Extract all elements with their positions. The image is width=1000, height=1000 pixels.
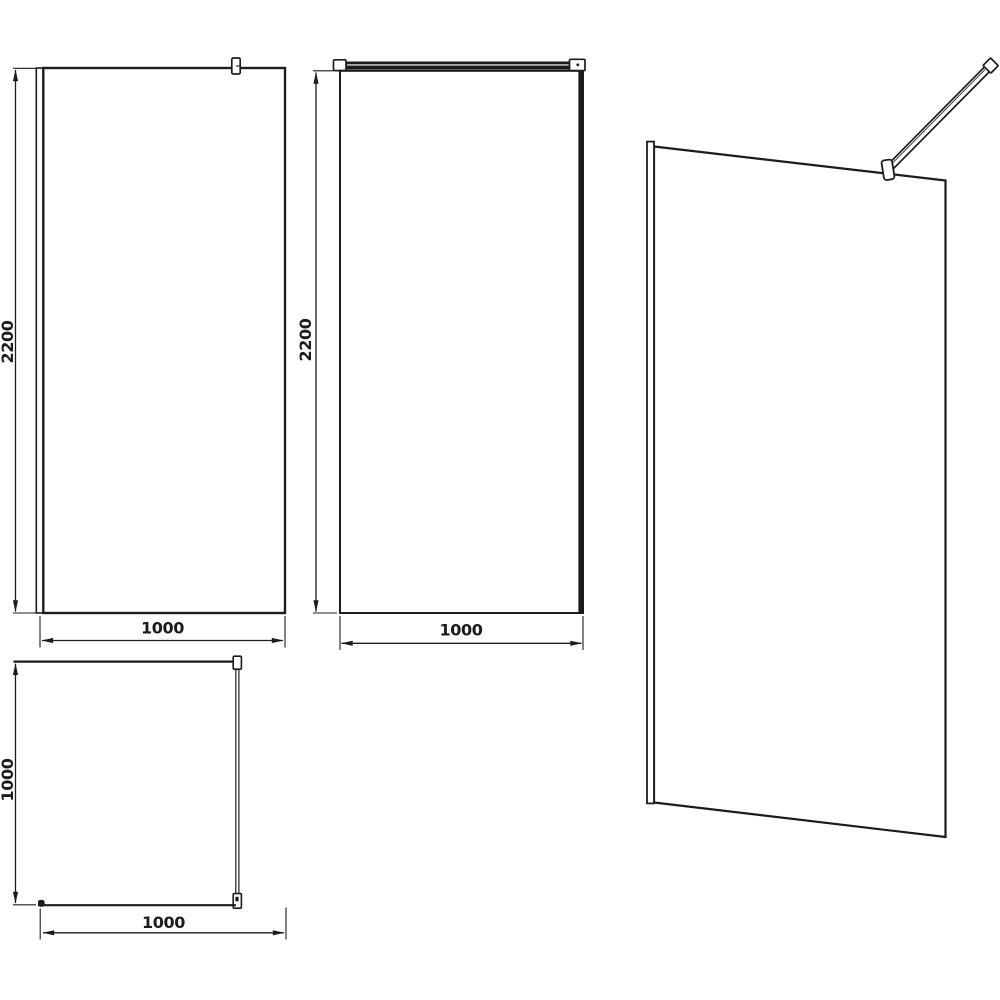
back-glass-panel — [340, 71, 583, 613]
plan-view: 1000 1000 — [0, 656, 286, 939]
persp-bar-clamp — [881, 159, 895, 180]
back-width-dim-label: 1000 — [440, 621, 483, 640]
plan-width-dim-label: 1000 — [142, 913, 185, 932]
persp-support-bar-highlight — [891, 70, 985, 165]
front-height-dim-label: 2200 — [0, 320, 17, 363]
technical-drawing-sheet: 2200 1000 2200 1000 — [0, 0, 1000, 1000]
persp-support-bar — [886, 58, 999, 172]
plan-depth-dim-label: 1000 — [0, 758, 17, 801]
plan-bar-wall-bracket-mark — [235, 897, 238, 902]
persp-bar-clamp-body — [881, 159, 895, 180]
persp-support-bar-tube — [887, 65, 991, 170]
front-view: 2200 1000 — [0, 58, 285, 648]
technical-drawing-canvas: 2200 1000 2200 1000 — [0, 0, 1000, 1000]
plan-bar-glass-bracket — [233, 656, 241, 669]
back-wall-profile — [578, 71, 583, 613]
back-support-bar — [346, 62, 572, 70]
persp-wall-profile — [647, 142, 654, 804]
perspective-view — [647, 58, 998, 837]
front-width-dim-label: 1000 — [141, 619, 184, 638]
back-height-dim-label: 2200 — [296, 318, 315, 361]
back-bar-end-cap-left — [334, 60, 347, 71]
back-view: 2200 1000 — [296, 59, 585, 650]
persp-glass-panel — [654, 147, 946, 838]
front-glass-panel — [43, 68, 285, 613]
plan-wall-profile-dot — [38, 900, 45, 907]
back-bar-cap-screw — [576, 63, 579, 66]
